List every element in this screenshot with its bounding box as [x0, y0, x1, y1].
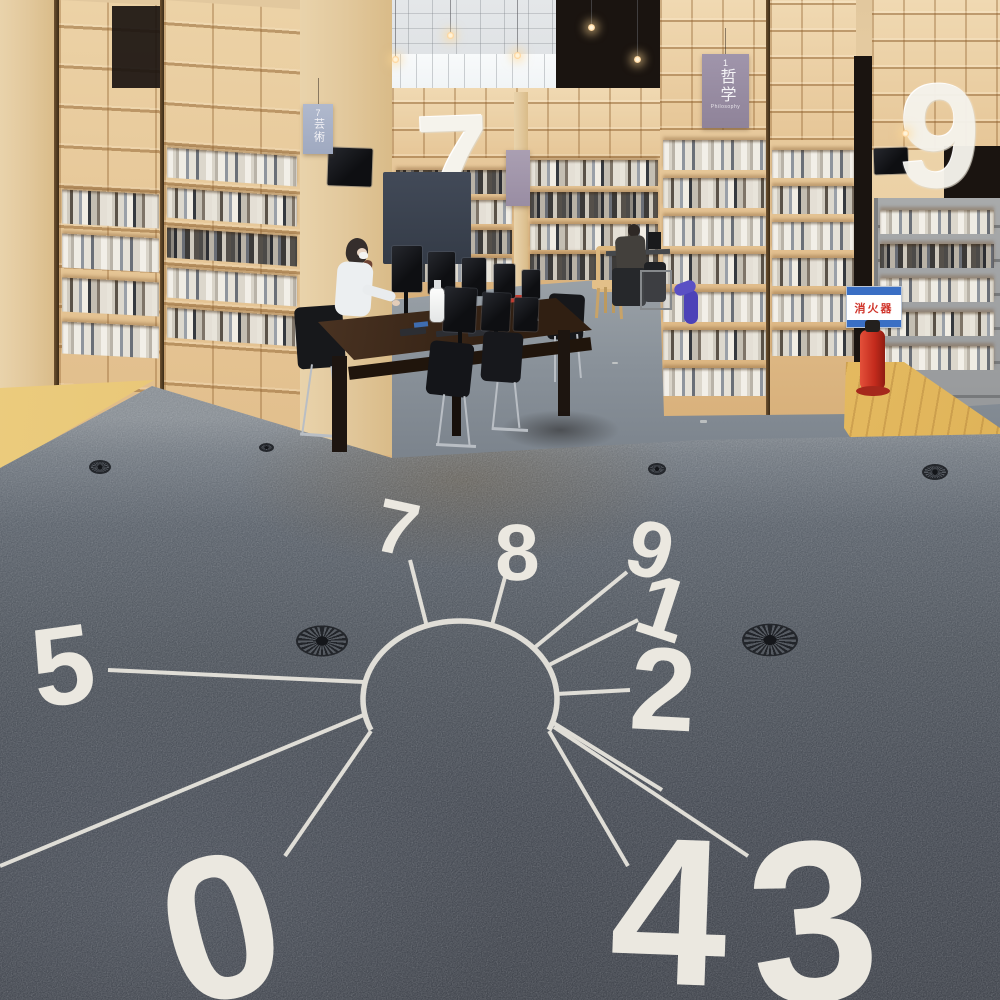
banner-philosophy-number: 1 — [723, 59, 728, 68]
light-cord — [450, 0, 451, 34]
sanitizer-pump — [434, 280, 441, 289]
monitor-back — [443, 287, 477, 333]
floor-number-2: 2 — [628, 641, 696, 739]
book-row — [772, 258, 854, 286]
pendant-light — [902, 130, 909, 137]
floor-vent — [742, 624, 798, 657]
book-row — [62, 277, 159, 316]
book-cart — [640, 270, 672, 310]
table-leg — [558, 330, 570, 416]
chair-leg — [604, 287, 607, 313]
book-row — [530, 160, 658, 186]
banner-philosophy-subtitle: Philosophy — [711, 104, 740, 110]
book-row — [772, 186, 854, 214]
book-row — [530, 192, 658, 218]
fire-extinguisher-label: 消火器 — [847, 295, 901, 320]
book-row — [772, 222, 854, 250]
banner-art: 7 芸術 — [303, 104, 333, 154]
floor-vent — [648, 463, 666, 475]
floor-number-3: 3 — [741, 825, 882, 1000]
banner-art-title: 芸術 — [313, 118, 324, 144]
pendant-light — [392, 56, 399, 63]
fire-extinguisher — [860, 330, 885, 390]
far-vent-dash — [612, 362, 618, 364]
computer-monitor — [392, 246, 422, 292]
pendant-light — [588, 24, 595, 31]
book-row — [663, 254, 766, 284]
black-chair-back — [480, 331, 523, 384]
book-row — [772, 150, 854, 178]
light-cord — [517, 0, 518, 54]
banner-wire — [725, 28, 726, 54]
computer-monitor — [522, 270, 540, 299]
floor-vent — [259, 443, 274, 452]
far-vent-dash — [700, 420, 707, 423]
light-cord — [395, 0, 396, 58]
monitor-stand — [404, 292, 408, 316]
wall-display-screen — [327, 147, 372, 187]
book-row — [663, 368, 766, 396]
book-row — [62, 233, 159, 272]
book-row — [663, 330, 766, 360]
book-row — [772, 294, 854, 322]
book-row — [880, 244, 994, 268]
book-row — [663, 216, 766, 246]
floor-number-4: 4 — [608, 826, 729, 998]
sanitizer-bottle — [430, 288, 444, 322]
distant-monitor — [648, 232, 661, 249]
book-row — [663, 292, 766, 322]
banner-distant — [506, 150, 530, 206]
banner-philosophy-title: 哲学 — [718, 68, 734, 104]
book-row — [772, 330, 854, 356]
library-photograph: 7 芸術 1 哲学 Philosophy 7 9 消火器 — [0, 0, 1000, 1000]
banner-philosophy: 1 哲学 Philosophy — [702, 54, 749, 128]
pendant-light — [447, 32, 454, 39]
book-row — [663, 178, 766, 208]
left-pilaster — [0, 0, 56, 392]
pendant-light — [514, 52, 521, 59]
floor-number-8: 8 — [494, 520, 539, 585]
sign-blue-bar — [847, 287, 901, 295]
floor-vent — [922, 464, 948, 480]
light-cord — [637, 0, 638, 58]
book-row — [62, 189, 159, 228]
book-row — [62, 321, 159, 358]
extinguisher-handle — [865, 320, 880, 332]
black-chair-back — [425, 340, 474, 398]
person-hand — [392, 300, 400, 306]
floor-vent — [296, 625, 348, 656]
numeral-sculpture-9: 9 — [894, 50, 985, 224]
banner-wire — [318, 78, 319, 104]
floor-vent — [89, 460, 111, 474]
book-row — [663, 140, 766, 170]
monitor-back — [513, 298, 538, 332]
extinguisher-base — [856, 386, 890, 396]
floor-number-5: 5 — [26, 617, 98, 714]
pendant-light — [634, 56, 641, 63]
monitor-back — [481, 292, 511, 331]
right-mid-grid — [770, 0, 856, 140]
banner-art-number: 7 — [315, 109, 320, 118]
purple-object-body — [684, 290, 698, 324]
face-mask — [359, 252, 368, 259]
light-cord — [591, 0, 592, 26]
ceiling-shadow-void — [556, 0, 664, 88]
table-leg — [332, 356, 347, 452]
